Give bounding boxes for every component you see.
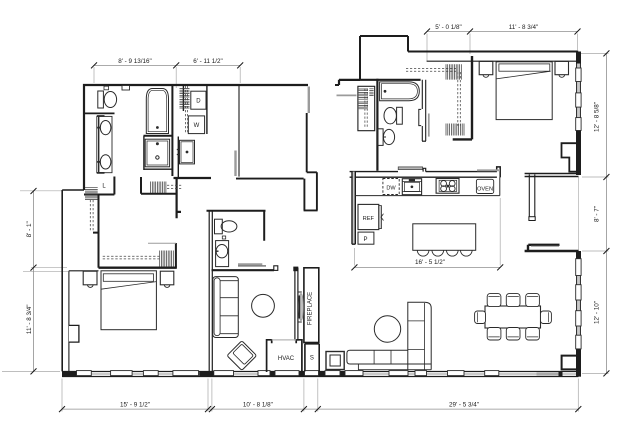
svg-text:12' - 10": 12' - 10" (594, 301, 601, 324)
svg-text:8' - 9 13/16": 8' - 9 13/16" (118, 58, 152, 65)
svg-text:DW: DW (386, 186, 396, 192)
svg-text:D: D (196, 98, 201, 104)
svg-text:FIREPLACE: FIREPLACE (308, 292, 314, 325)
svg-text:W: W (194, 123, 200, 129)
svg-text:12' - 8 5/8": 12' - 8 5/8" (594, 102, 601, 132)
svg-text:REF: REF (363, 216, 375, 222)
svg-text:15' - 9 1/2": 15' - 9 1/2" (120, 402, 150, 409)
svg-text:P: P (363, 237, 367, 243)
svg-text:HVAC: HVAC (278, 356, 295, 362)
svg-text:6' - 11 1/2": 6' - 11 1/2" (193, 58, 223, 65)
svg-text:16' - 5 1/2": 16' - 5 1/2" (415, 259, 445, 266)
svg-text:S: S (310, 356, 314, 362)
svg-text:11' - 8 3/4": 11' - 8 3/4" (509, 24, 539, 31)
svg-text:10' - 8 1/8": 10' - 8 1/8" (243, 402, 273, 409)
svg-text:5' - 0 1/8": 5' - 0 1/8" (435, 24, 462, 31)
svg-text:8' - 1": 8' - 1" (26, 221, 33, 237)
svg-text:OVEN: OVEN (477, 186, 493, 192)
svg-text:29' - 5 3/4": 29' - 5 3/4" (449, 402, 479, 409)
svg-text:11' - 8 3/4": 11' - 8 3/4" (26, 305, 33, 335)
svg-text:8' - 7": 8' - 7" (594, 206, 601, 222)
